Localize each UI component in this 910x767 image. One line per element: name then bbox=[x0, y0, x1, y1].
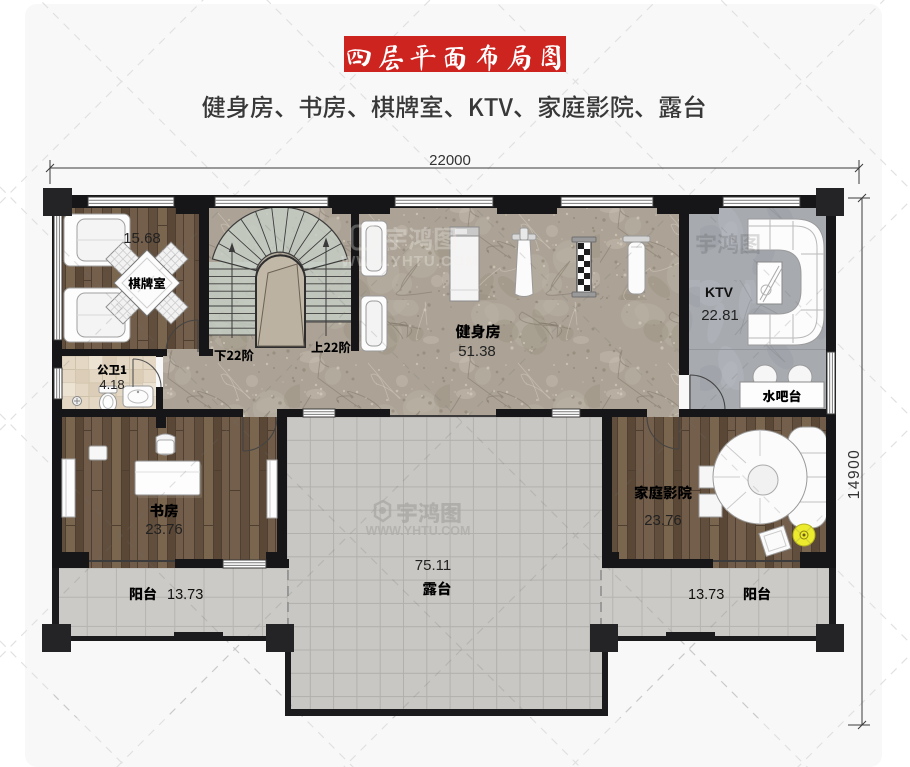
svg-text:14900: 14900 bbox=[846, 449, 863, 500]
svg-text:13.73: 13.73 bbox=[167, 587, 203, 603]
svg-text:75.11: 75.11 bbox=[415, 557, 451, 574]
svg-text:15.68: 15.68 bbox=[123, 230, 161, 247]
svg-text:13.73: 13.73 bbox=[688, 587, 724, 603]
svg-text:4.18: 4.18 bbox=[99, 377, 124, 392]
svg-text:22.81: 22.81 bbox=[701, 307, 739, 324]
svg-text:WWW.YHTU.COM: WWW.YHTU.COM bbox=[366, 524, 471, 538]
svg-text:51.38: 51.38 bbox=[458, 343, 496, 360]
svg-text:22000: 22000 bbox=[429, 152, 471, 169]
svg-text:KTV: KTV bbox=[705, 284, 734, 300]
svg-text:23.76: 23.76 bbox=[644, 512, 682, 529]
svg-text:23.76: 23.76 bbox=[145, 521, 183, 538]
svg-text:WWW.YHTU.COM: WWW.YHTU.COM bbox=[341, 253, 479, 270]
